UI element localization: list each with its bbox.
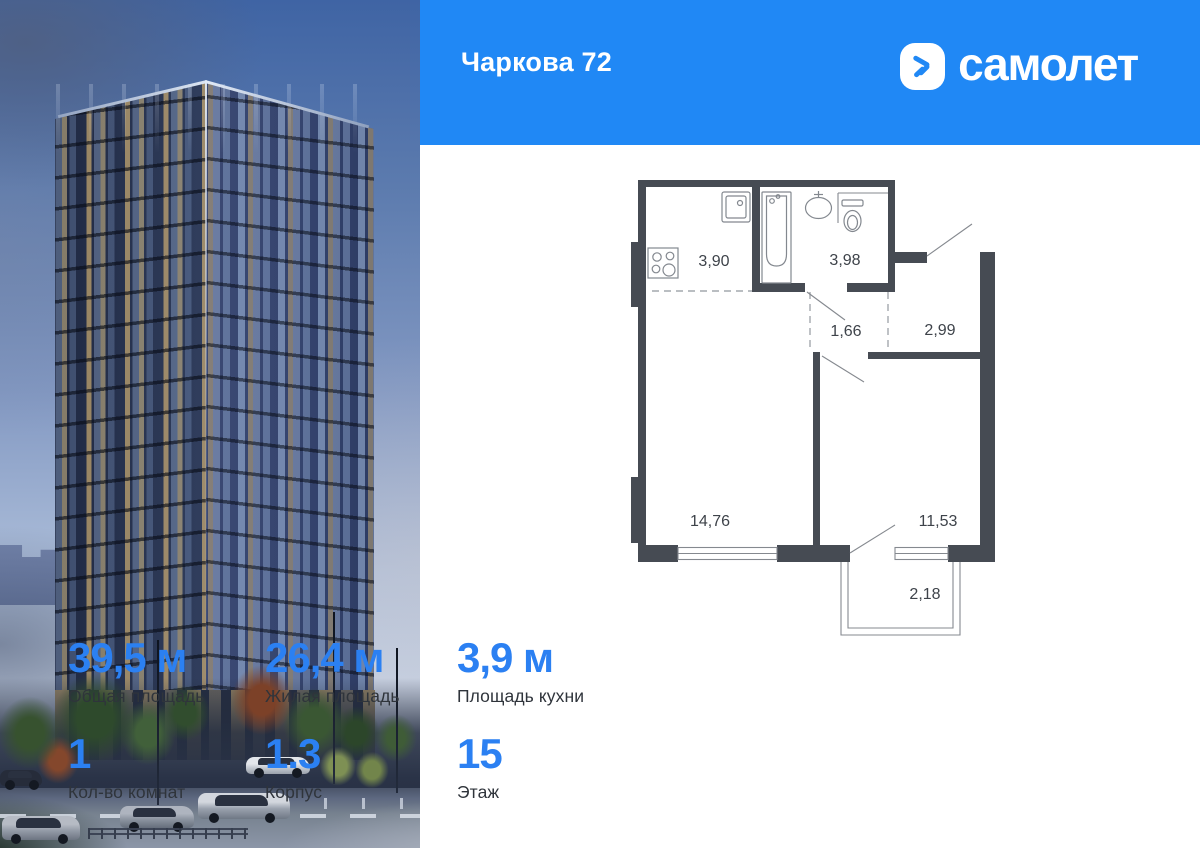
- living-room-area: 14,76: [690, 513, 730, 530]
- stat-kitchen-area: 3,9 м Площадь кухни: [457, 640, 584, 707]
- balcony-window: [895, 545, 948, 562]
- stat-floor: 15 Этаж: [457, 736, 502, 803]
- balcony-outline: [841, 562, 960, 635]
- listing-card-page: Чаркова 72 самолет: [0, 0, 1200, 848]
- stat-value: 1: [68, 736, 185, 772]
- bathtub-icon: [762, 192, 791, 283]
- parked-car: [120, 806, 194, 828]
- stat-building: 1.3 Корпус: [265, 736, 322, 803]
- tower-corner-edge: [205, 82, 207, 722]
- stat-label: Кол-во комнат: [68, 782, 185, 803]
- brand-logo: самолет: [900, 41, 1138, 91]
- hallway-area: 1,66: [830, 323, 861, 340]
- walls: [631, 180, 995, 562]
- kitchen-sink-icon: [722, 192, 750, 222]
- balcony-area: 2,18: [909, 586, 940, 603]
- floor-plan: 3,90 3,98 1,66 2,99 14,76 11,53 2,18: [620, 170, 1000, 795]
- toilet-icon: [842, 200, 863, 232]
- stat-value: 26,4 м: [265, 640, 400, 676]
- bathroom-area: 3,98: [829, 252, 860, 269]
- partition-lines: [838, 193, 888, 223]
- stat-total-area: 39,5 м Общая площадь: [68, 640, 204, 707]
- stat-label: Этаж: [457, 782, 502, 803]
- fence: [88, 828, 248, 839]
- zone-boundaries: [652, 291, 888, 352]
- facade-uplights: [56, 84, 374, 154]
- stat-label: Корпус: [265, 782, 322, 803]
- bedroom-area: 11,53: [919, 513, 958, 530]
- project-title: Чаркова 72: [461, 47, 612, 78]
- parked-car: [2, 816, 80, 840]
- stat-label: Площадь кухни: [457, 686, 584, 707]
- stat-label: Общая площадь: [68, 686, 204, 707]
- stat-value: 39,5 м: [68, 640, 204, 676]
- window: [678, 545, 777, 562]
- stat-rooms-count: 1 Кол-во комнат: [68, 736, 185, 803]
- header: Чаркова 72 самолет: [420, 0, 1200, 145]
- corridor-area: 2,99: [924, 322, 955, 339]
- parked-car: [0, 770, 42, 786]
- washbasin-icon: [806, 191, 832, 219]
- stat-living-area: 26,4 м Жилая площадь: [265, 640, 400, 707]
- stat-value: 3,9 м: [457, 640, 584, 676]
- stove-icon: [648, 248, 678, 278]
- building-photo: [0, 0, 420, 848]
- samolet-arrow-icon: [900, 43, 945, 90]
- stat-value: 1.3: [265, 736, 322, 772]
- brand-wordmark: самолет: [958, 41, 1138, 87]
- stat-label: Жилая площадь: [265, 686, 400, 707]
- kitchen-area: 3,90: [698, 253, 729, 270]
- stat-value: 15: [457, 736, 502, 772]
